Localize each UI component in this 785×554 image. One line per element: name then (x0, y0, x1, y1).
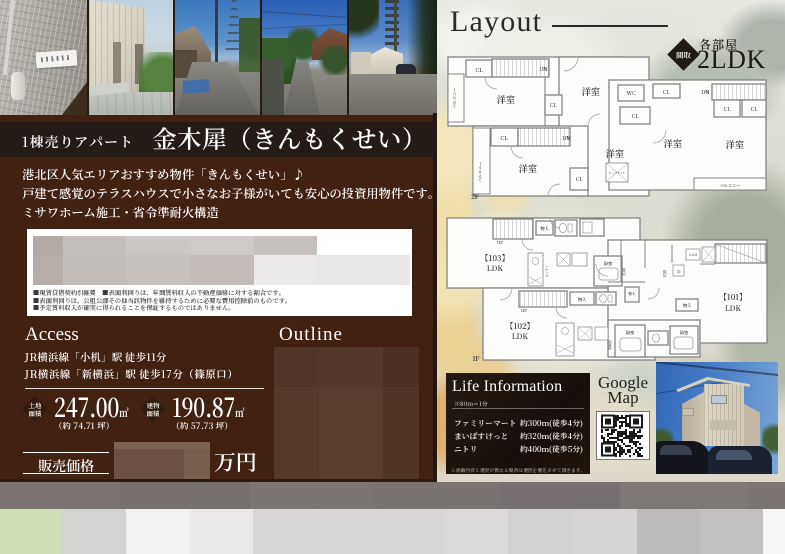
svg-text:トップライト: トップライト (609, 171, 626, 175)
svg-text:洋室: 洋室 (497, 92, 515, 106)
svg-text:CL: CL (663, 89, 670, 96)
svg-text:LDK: LDK (487, 263, 504, 274)
svg-text:CL: CL (550, 102, 557, 109)
svg-text:物入: 物入 (578, 297, 587, 303)
svg-text:WC: WC (627, 90, 636, 97)
svg-text:CL: CL (475, 66, 483, 74)
svg-text:浴室: 浴室 (680, 330, 689, 336)
svg-text:【101】: 【101】 (719, 292, 747, 303)
svg-text:CL: CL (576, 176, 583, 183)
svg-text:洋室: 洋室 (726, 137, 744, 151)
svg-text:DN: DN (701, 89, 709, 96)
svg-text:UP: UP (520, 308, 527, 314)
svg-text:CL: CL (632, 113, 639, 120)
svg-text:CL: CL (751, 106, 758, 113)
svg-text:浴室: 浴室 (604, 261, 613, 267)
svg-text:洋室: 洋室 (664, 136, 682, 150)
svg-text:2F: 2F (470, 192, 480, 201)
svg-text:物入: 物入 (540, 226, 549, 232)
svg-text:バルコニー: バルコニー (720, 183, 741, 189)
svg-text:洗面室: 洗面室 (607, 339, 612, 351)
svg-text:CL: CL (500, 134, 508, 142)
svg-text:DN: DN (539, 66, 547, 73)
svg-text:玄関: 玄関 (662, 270, 668, 279)
svg-text:お手洗: お手洗 (689, 253, 698, 257)
svg-text:CL: CL (724, 106, 731, 113)
svg-text:浴室: 浴室 (626, 330, 635, 336)
svg-text:バルコニー: バルコニー (452, 88, 458, 109)
svg-text:LDK: LDK (512, 331, 529, 342)
svg-text:UP: UP (496, 240, 503, 246)
svg-text:キッチン: キッチン (544, 265, 549, 278)
svg-text:物入: 物入 (683, 303, 692, 309)
svg-text:1F: 1F (472, 354, 480, 363)
svg-text:LDK: LDK (725, 303, 742, 314)
svg-text:DN: DN (562, 135, 570, 142)
svg-text:洋室: 洋室 (519, 161, 537, 175)
svg-text:洋室: 洋室 (582, 84, 600, 98)
svg-text:バルコニー: バルコニー (478, 162, 484, 183)
svg-text:洋室: 洋室 (606, 146, 624, 160)
svg-text:玄関: 玄関 (621, 268, 627, 277)
svg-text:物入: 物入 (627, 291, 636, 297)
